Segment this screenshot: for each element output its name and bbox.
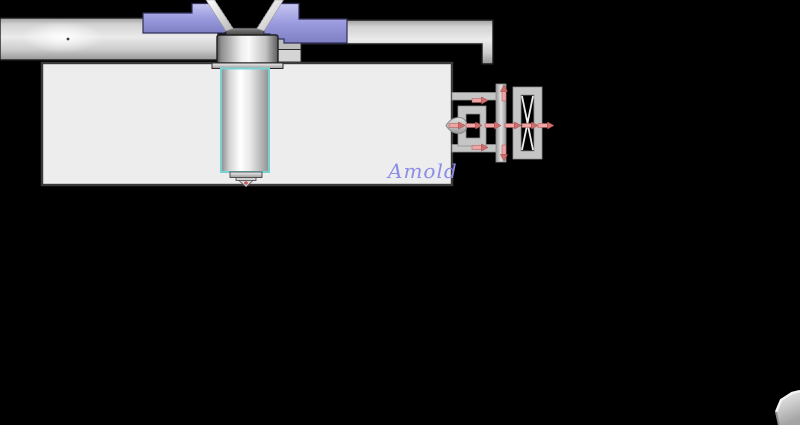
sprue-bushing-body: [221, 69, 269, 173]
sprue-bushing-head: [217, 35, 278, 63]
spacer-block-lower: [278, 50, 301, 63]
sprue-tip-collar: [236, 178, 256, 181]
left-plate-highlight: [22, 21, 102, 53]
flow-schematic: [446, 84, 554, 162]
left-plate-center-mark: [67, 38, 70, 41]
bolt-head: [776, 391, 800, 425]
melt-dot: [244, 181, 248, 185]
sprue-tip-step: [230, 172, 262, 178]
watermark-text: Amold: [386, 159, 458, 183]
mold-diagram: Amold: [0, 0, 800, 425]
